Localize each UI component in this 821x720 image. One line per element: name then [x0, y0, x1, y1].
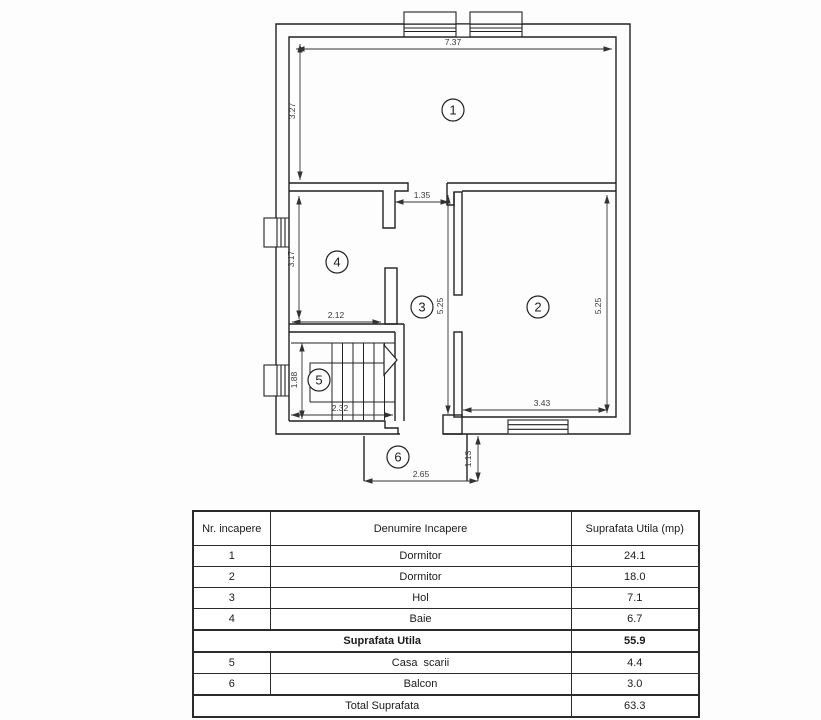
cell-denumire: Baie [270, 609, 571, 631]
dim-hol-door-width: 1.35 [414, 190, 431, 200]
cell-denumire: Dormitor [270, 546, 571, 567]
table-row: 5 Casa scarii 4.4 [193, 652, 699, 674]
areas-table: Nr. incapere Denumire Incapere Suprafata… [192, 510, 700, 718]
svg-text:1: 1 [449, 103, 456, 118]
header-suprafata-utila: Suprafata Utila (mp) [571, 511, 699, 546]
cell-suprafata: 4.4 [571, 652, 699, 674]
svg-text:6: 6 [394, 450, 401, 465]
cell-denumire: Balcon [270, 674, 571, 696]
cell-nr: 3 [193, 588, 270, 609]
room-marker-1: 1 [442, 99, 464, 121]
page: 7.37 3.27 1.35 3.17 2.12 5.25 5.25 3.43 … [0, 0, 821, 720]
cell-denumire: Hol [270, 588, 571, 609]
cell-suprafata: 6.7 [571, 609, 699, 631]
bottom-window-room2 [508, 420, 568, 434]
wall-room1-left [289, 183, 408, 228]
cell-nr: 2 [193, 567, 270, 588]
svg-text:4: 4 [333, 255, 340, 270]
subtotal-value: 55.9 [571, 630, 699, 652]
cell-suprafata: 3.0 [571, 674, 699, 696]
room-marker-4: 4 [326, 251, 348, 273]
table-row: 6 Balcon 3.0 [193, 674, 699, 696]
wall-room4-partition [385, 268, 397, 324]
dim-room2-height: 5.25 [593, 297, 603, 314]
dim-balcony-width: 2.65 [413, 469, 430, 479]
total-row: Total Suprafata 63.3 [193, 695, 699, 717]
subtotal-label: Suprafata Utila [193, 630, 571, 652]
dim-stairs-width: 2.32 [332, 403, 349, 413]
cell-suprafata: 7.1 [571, 588, 699, 609]
cell-suprafata: 24.1 [571, 546, 699, 567]
inner-wall-bottom-left [289, 421, 398, 434]
subtotal-row: Suprafata Utila 55.9 [193, 630, 699, 652]
table-row: 1 Dormitor 24.1 [193, 546, 699, 567]
wall-stairs-right [395, 332, 404, 421]
total-value: 63.3 [571, 695, 699, 717]
left-window-room4 [264, 218, 289, 247]
left-window-stairs [264, 365, 289, 396]
cell-denumire: Casa scarii [270, 652, 571, 674]
walls [276, 24, 630, 481]
cell-nr: 6 [193, 674, 270, 696]
dim-stairs-height: 1.88 [289, 371, 299, 388]
table-row: 4 Baie 6.7 [193, 609, 699, 631]
wall-hol-room2-lower [454, 332, 462, 417]
cell-nr: 4 [193, 609, 270, 631]
svg-text:2: 2 [534, 300, 541, 315]
header-denumire-incapere: Denumire Incapere [270, 511, 571, 546]
room-marker-3: 3 [411, 296, 433, 318]
cell-denumire: Dormitor [270, 567, 571, 588]
dim-room1-width: 7.37 [445, 37, 462, 47]
table-row: 3 Hol 7.1 [193, 588, 699, 609]
dim-room2-width: 3.43 [534, 398, 551, 408]
table-header-row: Nr. incapere Denumire Incapere Suprafata… [193, 511, 699, 546]
table-row: 2 Dormitor 18.0 [193, 567, 699, 588]
wall-bottom-jamb [443, 415, 462, 434]
wall-room4-bottom [289, 324, 404, 332]
dim-room4-height: 3.17 [286, 250, 296, 267]
wall-hol-room2-upper [454, 192, 462, 295]
wall-room1-right [447, 183, 616, 205]
svg-text:3: 3 [418, 300, 425, 315]
total-label: Total Suprafata [193, 695, 571, 717]
dim-room1-height: 3.27 [287, 102, 297, 119]
outer-wall [276, 24, 630, 434]
room-marker-2: 2 [527, 296, 549, 318]
cell-nr: 5 [193, 652, 270, 674]
dim-room4-width: 2.12 [328, 310, 345, 320]
dim-balcony-depth: 1.13 [463, 450, 473, 467]
cell-suprafata: 18.0 [571, 567, 699, 588]
svg-text:5: 5 [315, 373, 322, 388]
header-nr-incapere: Nr. incapere [193, 511, 270, 546]
room-marker-6: 6 [387, 446, 409, 468]
cell-nr: 1 [193, 546, 270, 567]
top-window [404, 12, 522, 37]
dim-hol-height: 5.25 [435, 297, 445, 314]
room-marker-5: 5 [308, 369, 330, 391]
